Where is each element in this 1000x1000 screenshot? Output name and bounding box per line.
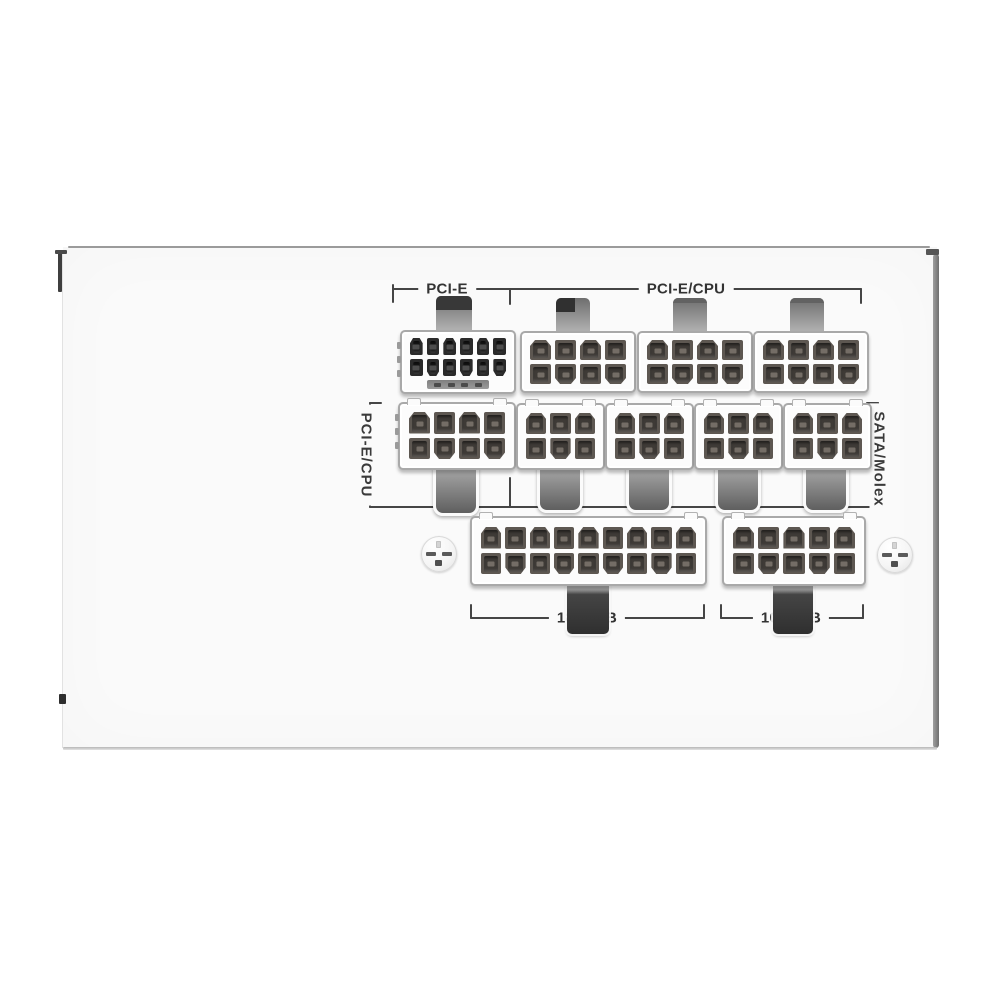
pin-contact — [496, 366, 503, 371]
pin-cavity — [484, 412, 505, 434]
pin-contact — [820, 373, 827, 378]
pin-contact — [446, 366, 453, 371]
panel-notch-left-top-cap — [55, 250, 67, 254]
pin-contact — [658, 562, 665, 567]
pin-cavity — [672, 340, 693, 360]
pin-cavity — [580, 340, 601, 360]
pin-contact — [816, 562, 823, 567]
pin-cavity — [530, 340, 551, 360]
pin-contact — [585, 562, 592, 567]
connector-nub — [731, 512, 745, 519]
pin-contact — [561, 536, 568, 541]
pin-cavity — [753, 438, 773, 459]
pin-contact — [512, 562, 519, 567]
pin-cavity — [427, 359, 440, 376]
pin-cavity — [615, 413, 635, 434]
pin-cavity — [603, 553, 623, 575]
screw-slot — [892, 542, 897, 549]
pcie-cpu-8pin-socket-4-pins — [409, 412, 505, 459]
bracket-top-right-tick — [860, 288, 862, 304]
pin-contact — [679, 349, 686, 354]
pin-contact — [800, 447, 807, 452]
screw-slot — [436, 541, 441, 548]
screw-head-right-icon — [877, 537, 913, 573]
pin-cavity — [664, 413, 684, 434]
pin-contact — [735, 422, 742, 427]
pin-cavity — [651, 527, 671, 549]
bracket-18p-right-tick — [703, 604, 705, 619]
pin-contact — [479, 366, 486, 371]
pin-contact — [770, 373, 777, 378]
pin-contact — [466, 421, 473, 426]
bracket-top-left-tick — [392, 284, 394, 303]
screw-head-left-icon — [421, 536, 457, 572]
pcie-cpu-8pin-socket-2 — [637, 331, 753, 393]
pin-cavity — [578, 553, 598, 575]
pin-cavity — [410, 338, 423, 355]
pin-contact — [446, 345, 453, 350]
pin-cavity — [443, 359, 456, 376]
pin-cavity — [809, 553, 830, 575]
pin-cavity — [763, 340, 784, 360]
connector-nub — [395, 442, 399, 449]
pin-contact — [795, 349, 802, 354]
pin-contact — [765, 562, 772, 567]
pcie-cpu-8pin-socket-1-pins — [530, 340, 626, 384]
pin-contact — [581, 447, 588, 452]
pin-contact — [654, 373, 661, 378]
sata-molex-6pin-socket-2-pins — [615, 413, 684, 459]
pin-cavity — [639, 413, 659, 434]
pin-cavity — [459, 438, 480, 460]
connector-nub — [760, 399, 774, 406]
pin-contact — [533, 447, 540, 452]
pin-contact — [585, 536, 592, 541]
pin-contact — [587, 349, 594, 354]
pin-cavity — [409, 438, 430, 460]
pin-cavity — [838, 340, 859, 360]
pin-cavity — [578, 527, 598, 549]
pin-contact — [704, 349, 711, 354]
pin-contact — [562, 373, 569, 378]
latch-cap — [436, 296, 472, 310]
pin-cavity — [834, 527, 855, 549]
panel-bottom-edge — [63, 747, 937, 750]
mainboard-18pin-socket — [470, 516, 707, 586]
sense-pin — [434, 383, 441, 387]
connector-nub — [397, 342, 401, 349]
label-pcie-cpu-vertical: PCI-E/CPU — [357, 405, 376, 506]
pin-cavity — [758, 527, 779, 549]
pin-contact — [735, 447, 742, 452]
pin-cavity — [526, 413, 546, 434]
pin-contact — [488, 536, 495, 541]
latch-cap — [790, 298, 824, 303]
pin-cavity — [554, 553, 574, 575]
label-pcie-cpu: PCI-E/CPU — [639, 281, 734, 298]
pin-contact — [790, 562, 797, 567]
pin-cavity — [460, 359, 473, 376]
pin-contact — [729, 349, 736, 354]
pin-contact — [679, 373, 686, 378]
pin-cavity — [639, 438, 659, 459]
pin-contact — [654, 349, 661, 354]
pin-cavity — [813, 340, 834, 360]
pin-contact — [634, 562, 641, 567]
pin-cavity — [733, 553, 754, 575]
pin-cavity — [550, 438, 570, 459]
pin-contact — [557, 422, 564, 427]
sata-molex-6pin-socket-4 — [783, 403, 872, 470]
screw-slot — [426, 552, 436, 556]
pin-cavity — [704, 413, 724, 434]
psu-modular-panel-photo: PCI-E PCI-E/CPU PCI-E/CPU SATA/Molex 18P… — [0, 0, 1000, 1000]
pin-cavity — [647, 364, 668, 384]
pin-contact — [581, 422, 588, 427]
pin-contact — [533, 422, 540, 427]
pin-contact — [491, 447, 498, 452]
connector-nub — [479, 512, 493, 519]
pin-cavity — [842, 413, 862, 434]
connector-nub — [493, 398, 507, 405]
pcie-cpu-8pin-socket-3-pins — [763, 340, 859, 384]
connector-nub — [397, 370, 401, 377]
pin-contact — [845, 373, 852, 378]
pin-contact — [800, 422, 807, 427]
bracket-10p-right-tick — [862, 604, 864, 619]
pin-cavity — [788, 364, 809, 384]
screw-slot — [898, 553, 908, 557]
pin-contact — [841, 562, 848, 567]
pin-contact — [612, 373, 619, 378]
pin-contact — [740, 562, 747, 567]
pin-cavity — [605, 340, 626, 360]
pin-contact — [429, 366, 436, 371]
pin-contact — [413, 366, 420, 371]
pin-contact — [587, 373, 594, 378]
pin-cavity — [575, 438, 595, 459]
screw-slot — [891, 561, 898, 567]
pin-contact — [537, 349, 544, 354]
pin-cavity — [728, 438, 748, 459]
pin-cavity — [704, 438, 724, 459]
pcie-cpu-8pin-socket-2-pins — [647, 340, 743, 384]
panel-notch-right-top — [926, 249, 939, 255]
pin-cavity — [697, 340, 718, 360]
pin-contact — [416, 447, 423, 452]
panel-right-edge — [933, 254, 939, 748]
pin-contact — [441, 447, 448, 452]
pin-cavity — [697, 364, 718, 384]
pin-cavity — [530, 364, 551, 384]
pin-contact — [704, 373, 711, 378]
pin-cavity — [505, 553, 525, 575]
pin-cavity — [493, 359, 506, 376]
pin-contact — [790, 536, 797, 541]
mainboard-10pin-socket-pins — [733, 527, 855, 574]
pin-cavity — [410, 359, 423, 376]
pin-contact — [612, 349, 619, 354]
pin-contact — [562, 349, 569, 354]
connector-nub — [671, 399, 685, 406]
pin-contact — [416, 421, 423, 426]
pin-contact — [848, 422, 855, 427]
label-pcie: PCI-E — [418, 281, 476, 298]
pin-cavity — [817, 413, 837, 434]
pin-cavity — [427, 338, 440, 355]
pcie-cpu-8pin-socket-1 — [520, 331, 636, 393]
pin-contact — [816, 536, 823, 541]
pin-cavity — [530, 527, 550, 549]
connector-nub — [582, 399, 596, 406]
pin-cavity — [676, 527, 696, 549]
pin-cavity — [813, 364, 834, 384]
pin-cavity — [434, 412, 455, 434]
sata-molex-6pin-socket-2 — [605, 403, 694, 470]
pin-contact — [824, 447, 831, 452]
pin-cavity — [615, 438, 635, 459]
mainboard-18pin-socket-pins — [481, 527, 696, 574]
connector-nub — [397, 356, 401, 363]
pin-contact — [729, 373, 736, 378]
pin-cavity — [793, 438, 813, 459]
pin-cavity — [555, 364, 576, 384]
pin-cavity — [788, 340, 809, 360]
pin-cavity — [481, 553, 501, 575]
pin-cavity — [783, 553, 804, 575]
pin-contact — [488, 562, 495, 567]
pin-contact — [711, 447, 718, 452]
pin-cavity — [809, 527, 830, 549]
pin-contact — [646, 447, 653, 452]
pin-cavity — [763, 364, 784, 384]
connector-nub — [395, 414, 399, 421]
pin-cavity — [484, 438, 505, 460]
screw-slot — [882, 553, 892, 557]
pin-cavity — [603, 527, 623, 549]
pcie-cpu-8pin-socket-4 — [398, 402, 516, 470]
pcie-12plus4-socket-pins — [410, 338, 506, 376]
sense-pin — [461, 383, 468, 387]
pin-contact — [711, 422, 718, 427]
pin-contact — [759, 422, 766, 427]
pin-cavity — [753, 413, 773, 434]
pin-cavity — [505, 527, 525, 549]
pin-cavity — [817, 438, 837, 459]
pin-cavity — [555, 340, 576, 360]
panel-notch-left-bottom — [59, 694, 66, 704]
pin-contact — [512, 536, 519, 541]
pin-cavity — [493, 338, 506, 355]
pin-contact — [413, 345, 420, 350]
pin-contact — [537, 373, 544, 378]
latch-cap — [673, 298, 707, 303]
pin-contact — [841, 536, 848, 541]
pin-cavity — [443, 338, 456, 355]
pin-cavity — [526, 438, 546, 459]
pin-cavity — [459, 412, 480, 434]
pin-cavity — [838, 364, 859, 384]
pin-contact — [561, 562, 568, 567]
pin-cavity — [783, 527, 804, 549]
pin-contact — [536, 536, 543, 541]
pin-cavity — [530, 553, 550, 575]
pin-contact — [609, 536, 616, 541]
pcie-cpu-8pin-socket-3 — [753, 331, 869, 393]
pin-contact — [463, 366, 470, 371]
pin-cavity — [793, 413, 813, 434]
sata-molex-6pin-socket-4-pins — [793, 413, 862, 459]
pin-contact — [670, 447, 677, 452]
pin-cavity — [627, 527, 647, 549]
sense-pin-bar — [427, 380, 489, 389]
pin-cavity — [627, 553, 647, 575]
pin-contact — [496, 345, 503, 350]
pcie-12plus4-socket — [400, 330, 516, 394]
pin-contact — [740, 536, 747, 541]
pin-cavity — [664, 438, 684, 459]
bracket-mid-divider-tick — [509, 477, 511, 507]
connector-nub — [684, 512, 698, 519]
pin-contact — [759, 447, 766, 452]
pin-contact — [429, 345, 436, 350]
connector-nub — [703, 399, 717, 406]
pin-contact — [622, 447, 629, 452]
pin-contact — [634, 536, 641, 541]
pin-cavity — [575, 413, 595, 434]
pin-contact — [536, 562, 543, 567]
sense-pin — [448, 383, 455, 387]
pin-cavity — [758, 553, 779, 575]
pin-contact — [795, 373, 802, 378]
pin-cavity — [728, 413, 748, 434]
pin-cavity — [605, 364, 626, 384]
sata-molex-6pin-socket-1 — [516, 403, 605, 470]
pin-contact — [682, 562, 689, 567]
label-sata-molex-vertical: SATA/Molex — [870, 403, 889, 514]
pin-contact — [466, 447, 473, 452]
pin-contact — [658, 536, 665, 541]
pin-cavity — [842, 438, 862, 459]
pin-cavity — [676, 553, 696, 575]
pin-cavity — [477, 338, 490, 355]
pin-cavity — [460, 338, 473, 355]
pin-cavity — [722, 364, 743, 384]
pin-cavity — [733, 527, 754, 549]
connector-nub — [843, 512, 857, 519]
mainboard-10pin-socket — [722, 516, 866, 586]
pin-cavity — [477, 359, 490, 376]
sense-pin — [475, 383, 482, 387]
connector-nub — [614, 399, 628, 406]
pin-cavity — [434, 438, 455, 460]
pin-contact — [479, 345, 486, 350]
pin-cavity — [580, 364, 601, 384]
sata-molex-6pin-socket-1-pins — [526, 413, 595, 459]
pin-contact — [770, 349, 777, 354]
pin-cavity — [722, 340, 743, 360]
pin-contact — [820, 349, 827, 354]
sata-molex-6pin-socket-3 — [694, 403, 783, 470]
pin-cavity — [481, 527, 501, 549]
pin-contact — [609, 562, 616, 567]
pin-cavity — [554, 527, 574, 549]
pin-cavity — [672, 364, 693, 384]
sata-molex-6pin-socket-3-pins — [704, 413, 773, 459]
connector-nub — [395, 428, 399, 435]
panel-top-edge — [68, 246, 930, 248]
screw-slot — [442, 552, 452, 556]
pin-contact — [682, 536, 689, 541]
pin-cavity — [834, 553, 855, 575]
pin-cavity — [651, 553, 671, 575]
pin-contact — [848, 447, 855, 452]
pin-cavity — [409, 412, 430, 434]
screw-slot — [435, 560, 442, 566]
connector-nub — [407, 398, 421, 405]
pin-contact — [491, 421, 498, 426]
pin-contact — [441, 421, 448, 426]
panel-notch-left-top — [58, 252, 62, 292]
panel-left-edge — [62, 252, 63, 748]
connector-nub — [525, 399, 539, 406]
pin-contact — [622, 422, 629, 427]
pin-contact — [670, 422, 677, 427]
connector-nub — [792, 399, 806, 406]
latch-cap — [556, 298, 575, 312]
pin-cavity — [647, 340, 668, 360]
pin-contact — [824, 422, 831, 427]
pin-contact — [765, 536, 772, 541]
connector-nub — [849, 399, 863, 406]
bracket-top-divider-tick — [509, 288, 511, 305]
pin-contact — [463, 345, 470, 350]
pin-contact — [557, 447, 564, 452]
pin-contact — [845, 349, 852, 354]
pin-cavity — [550, 413, 570, 434]
pin-contact — [646, 422, 653, 427]
